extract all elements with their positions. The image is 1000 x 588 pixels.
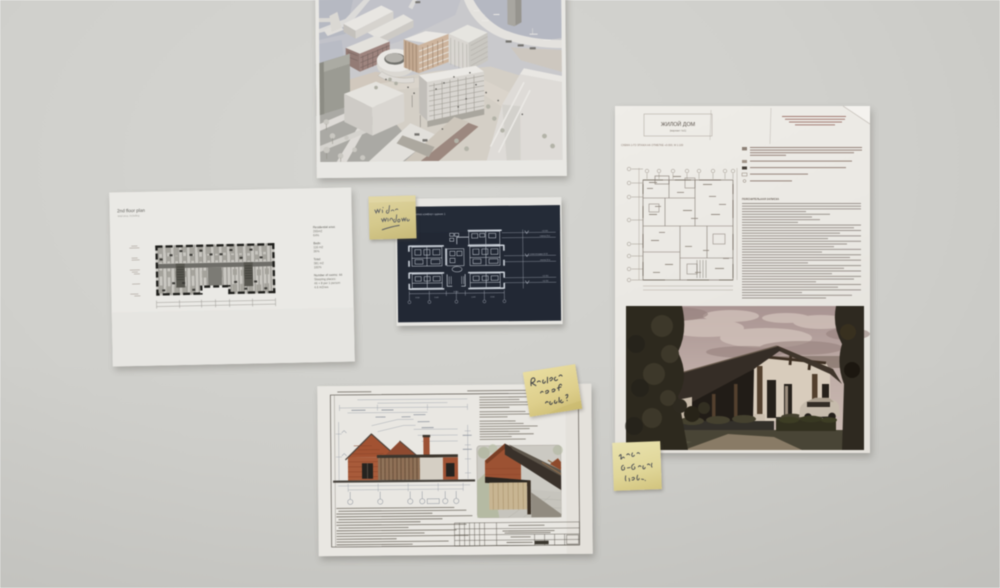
svg-text:24 000: 24 000 xyxy=(453,291,458,293)
svg-text:5 400: 5 400 xyxy=(471,297,475,299)
svg-text:36%: 36% xyxy=(313,249,319,253)
svg-text:отметка 30 м: отметка 30 м xyxy=(540,259,551,261)
svg-text:отметка 25 м: отметка 25 м xyxy=(540,235,551,237)
svg-text:5 400: 5 400 xyxy=(434,297,438,299)
svg-text:6 000: 6 000 xyxy=(490,296,494,298)
svg-text:(вариант №1): (вариант №1) xyxy=(670,129,687,133)
svg-text:СХЕМА 1-ГО ЭТАЖА НА ОТМЕТКЕ +0: СХЕМА 1-ГО ЭТАЖА НА ОТМЕТКЕ +0.000, М 1:… xyxy=(621,143,684,147)
svg-text:ПОЯСНИТЕЛЬНАЯ ЗАПИСКА: ПОЯСНИТЕЛЬНАЯ ЗАПИСКА xyxy=(742,197,779,201)
svg-text:схема площадки 05-03: схема площадки 05-03 xyxy=(530,253,548,255)
svg-text:64%: 64% xyxy=(313,233,319,237)
svg-text:total area, including: total area, including xyxy=(118,214,140,217)
svg-text:+12 500: +12 500 xyxy=(542,230,548,232)
svg-text:+10 200: +10 200 xyxy=(542,280,548,282)
svg-text:6 000: 6 000 xyxy=(415,297,419,299)
svg-text:100%: 100% xyxy=(314,265,322,269)
svg-text:схема комфорт здание 1: схема комфорт здание 1 xyxy=(414,212,445,216)
svg-text:2nd floor plan: 2nd floor plan xyxy=(117,208,145,214)
svg-text:4.6 m2/res: 4.6 m2/res xyxy=(314,285,329,289)
svg-text:ЖИЛОЙ ДОМ: ЖИЛОЙ ДОМ xyxy=(661,120,696,128)
svg-text:+15 300: +15 300 xyxy=(542,275,548,277)
